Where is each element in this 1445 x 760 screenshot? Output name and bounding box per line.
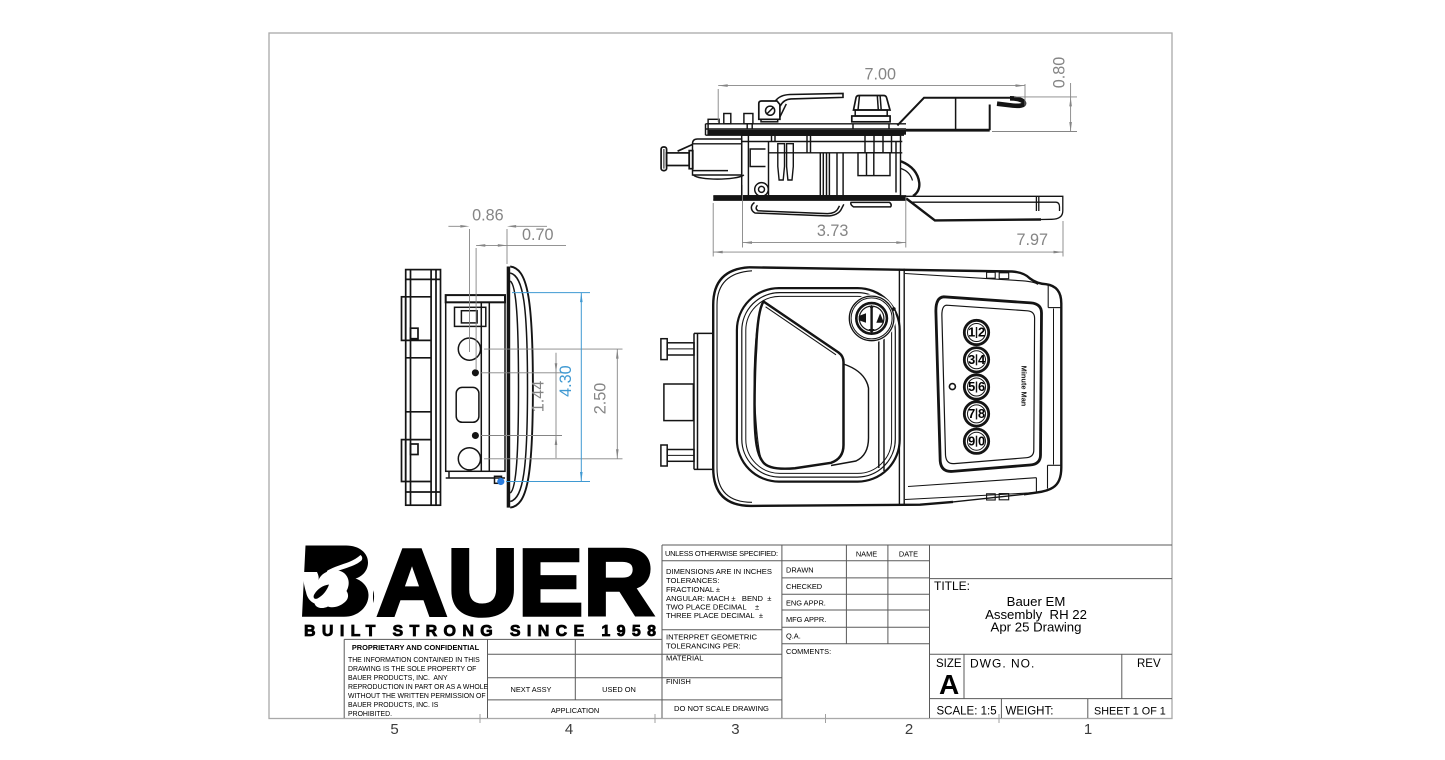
svg-text:ENG APPR.: ENG APPR.	[786, 599, 826, 608]
svg-text:INTERPRET GEOMETRIC: INTERPRET GEOMETRIC	[666, 633, 758, 642]
svg-text:Q.A.: Q.A.	[786, 632, 801, 641]
svg-text:SCALE: 1:5: SCALE: 1:5	[937, 706, 997, 718]
svg-text:THREE PLACE DECIMAL ±: THREE PLACE DECIMAL ±	[666, 611, 763, 620]
svg-text:TITLE:: TITLE:	[934, 579, 970, 593]
svg-text:SHEET 1 OF 1: SHEET 1 OF 1	[1094, 706, 1166, 718]
svg-text:3: 3	[731, 721, 739, 738]
svg-text:8: 8	[978, 406, 985, 421]
svg-text:NAME: NAME	[856, 550, 877, 559]
svg-text:1.44: 1.44	[530, 381, 548, 413]
svg-text:TOLERANCES:: TOLERANCES:	[666, 576, 719, 585]
svg-text:3: 3	[968, 352, 975, 367]
svg-text:A: A	[939, 669, 959, 700]
svg-text:4: 4	[978, 352, 986, 367]
svg-text:4: 4	[565, 721, 573, 738]
svg-text:THE INFORMATION CONTAINED IN T: THE INFORMATION CONTAINED IN THIS	[348, 657, 480, 664]
svg-text:MATERIAL: MATERIAL	[666, 654, 703, 663]
svg-text:1: 1	[968, 325, 975, 340]
svg-text:REV: REV	[1137, 658, 1161, 670]
svg-text:APPLICATION: APPLICATION	[551, 706, 599, 715]
svg-text:BAUER PRODUCTS, INC. ANY: BAUER PRODUCTS, INC. ANY	[348, 675, 448, 682]
svg-text:7.00: 7.00	[865, 66, 897, 84]
svg-text:USED ON: USED ON	[602, 685, 636, 694]
svg-text:NEXT ASSY: NEXT ASSY	[511, 685, 552, 694]
svg-text:REPRODUCTION IN PART OR AS A W: REPRODUCTION IN PART OR AS A WHOLE	[348, 684, 489, 691]
svg-text:WITHOUT THE WRITTEN PERMISSION: WITHOUT THE WRITTEN PERMISSION OF	[348, 693, 486, 700]
svg-text:DRAWING IS THE SOLE PROPERTY O: DRAWING IS THE SOLE PROPERTY OF	[348, 666, 476, 673]
svg-text:0.80: 0.80	[1051, 57, 1069, 89]
svg-text:DRAWN: DRAWN	[786, 566, 814, 575]
svg-text:DO NOT SCALE DRAWING: DO NOT SCALE DRAWING	[674, 704, 769, 713]
svg-text:1: 1	[1084, 721, 1092, 738]
svg-text:2.50: 2.50	[591, 383, 609, 415]
svg-text:9: 9	[968, 433, 975, 448]
svg-text:FRACTIONAL ±: FRACTIONAL ±	[666, 585, 720, 594]
svg-text:UNLESS OTHERWISE SPECIFIED:: UNLESS OTHERWISE SPECIFIED:	[665, 549, 778, 558]
svg-text:Apr 25 Drawing: Apr 25 Drawing	[991, 620, 1082, 635]
svg-text:DIMENSIONS ARE IN INCHES: DIMENSIONS ARE IN INCHES	[666, 567, 772, 576]
svg-text:BUILT STRONG SINCE 1958: BUILT STRONG SINCE 1958	[304, 623, 656, 640]
svg-text:0.86: 0.86	[472, 206, 504, 224]
svg-text:7: 7	[968, 406, 975, 421]
svg-text:5: 5	[390, 721, 398, 738]
svg-text:DWG. NO.: DWG. NO.	[970, 657, 1035, 671]
svg-text:6: 6	[978, 379, 985, 394]
svg-text:PROHIBITED.: PROHIBITED.	[348, 711, 392, 718]
svg-text:Minute Man: Minute Man	[1019, 366, 1028, 407]
svg-text:COMMENTS:: COMMENTS:	[786, 647, 831, 656]
svg-text:3.73: 3.73	[817, 222, 849, 240]
svg-text:2: 2	[978, 325, 985, 340]
svg-text:4.30: 4.30	[557, 365, 575, 397]
svg-text:5: 5	[968, 379, 975, 394]
svg-text:0: 0	[978, 433, 985, 448]
svg-text:WEIGHT:: WEIGHT:	[1006, 706, 1054, 718]
svg-text:0.70: 0.70	[522, 226, 554, 244]
svg-text:CHECKED: CHECKED	[786, 582, 822, 591]
svg-text:2: 2	[905, 721, 913, 738]
svg-text:DATE: DATE	[899, 550, 918, 559]
svg-text:FINISH: FINISH	[666, 677, 691, 686]
svg-text:MFG APPR.: MFG APPR.	[786, 615, 826, 624]
svg-text:TOLERANCING PER:: TOLERANCING PER:	[666, 642, 741, 651]
svg-text:7.97: 7.97	[1016, 231, 1048, 249]
svg-text:BAUER PRODUCTS, INC. IS: BAUER PRODUCTS, INC. IS	[348, 702, 439, 709]
svg-text:PROPRIETARY AND CONFIDENTIAL: PROPRIETARY AND CONFIDENTIAL	[352, 643, 480, 652]
